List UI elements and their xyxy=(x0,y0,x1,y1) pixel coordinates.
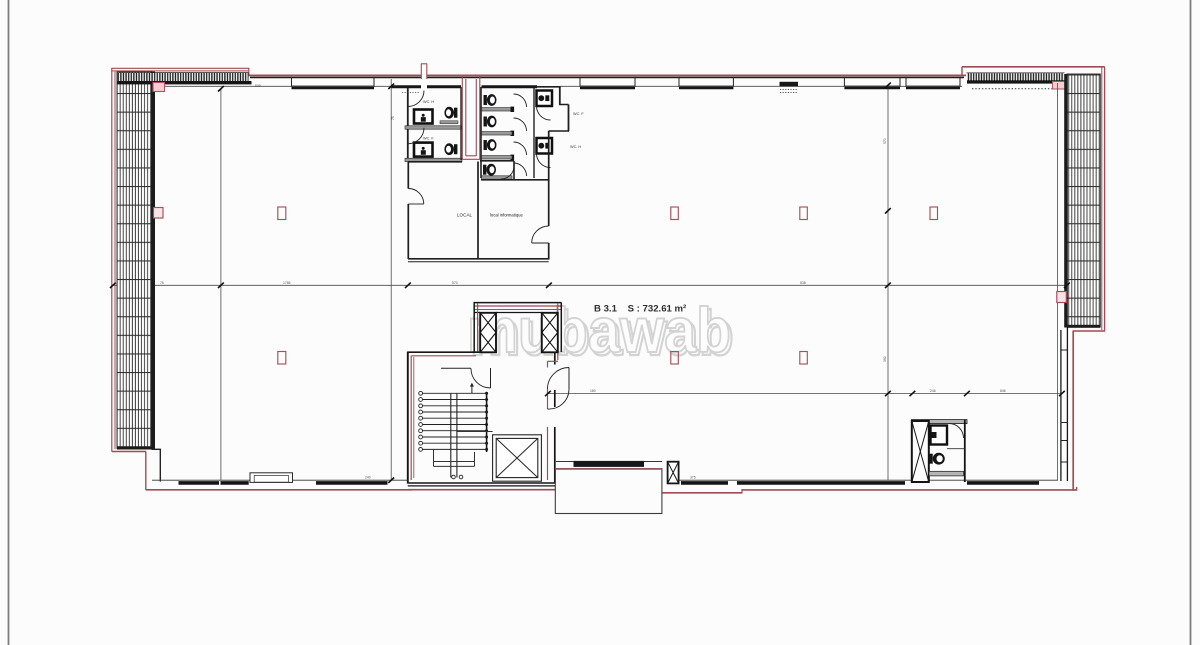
svg-text:WC. H: WC. H xyxy=(423,100,434,104)
svg-text:392: 392 xyxy=(883,356,887,362)
svg-text:939: 939 xyxy=(255,84,261,88)
svg-text:WC. F: WC. F xyxy=(573,112,584,116)
svg-text:240: 240 xyxy=(365,476,371,480)
svg-text:75: 75 xyxy=(160,281,164,285)
svg-text:WC. H: WC. H xyxy=(570,145,581,149)
svg-text:75: 75 xyxy=(391,116,395,120)
svg-text:B 3.1 S : 732.61 m²: B 3.1 S : 732.61 m² xyxy=(594,304,686,315)
svg-text:246: 246 xyxy=(930,389,936,393)
svg-text:local informatique: local informatique xyxy=(490,213,523,218)
svg-text:570: 570 xyxy=(883,138,887,144)
svg-text:WC. F: WC. F xyxy=(423,137,434,141)
svg-text:180: 180 xyxy=(590,389,596,393)
svg-text:570: 570 xyxy=(452,281,458,285)
svg-text:1786: 1786 xyxy=(283,281,291,285)
svg-text:375: 375 xyxy=(690,476,696,480)
svg-text:846: 846 xyxy=(1000,389,1006,393)
svg-text:LOCAL: LOCAL xyxy=(457,213,473,218)
svg-text:838: 838 xyxy=(800,281,806,285)
